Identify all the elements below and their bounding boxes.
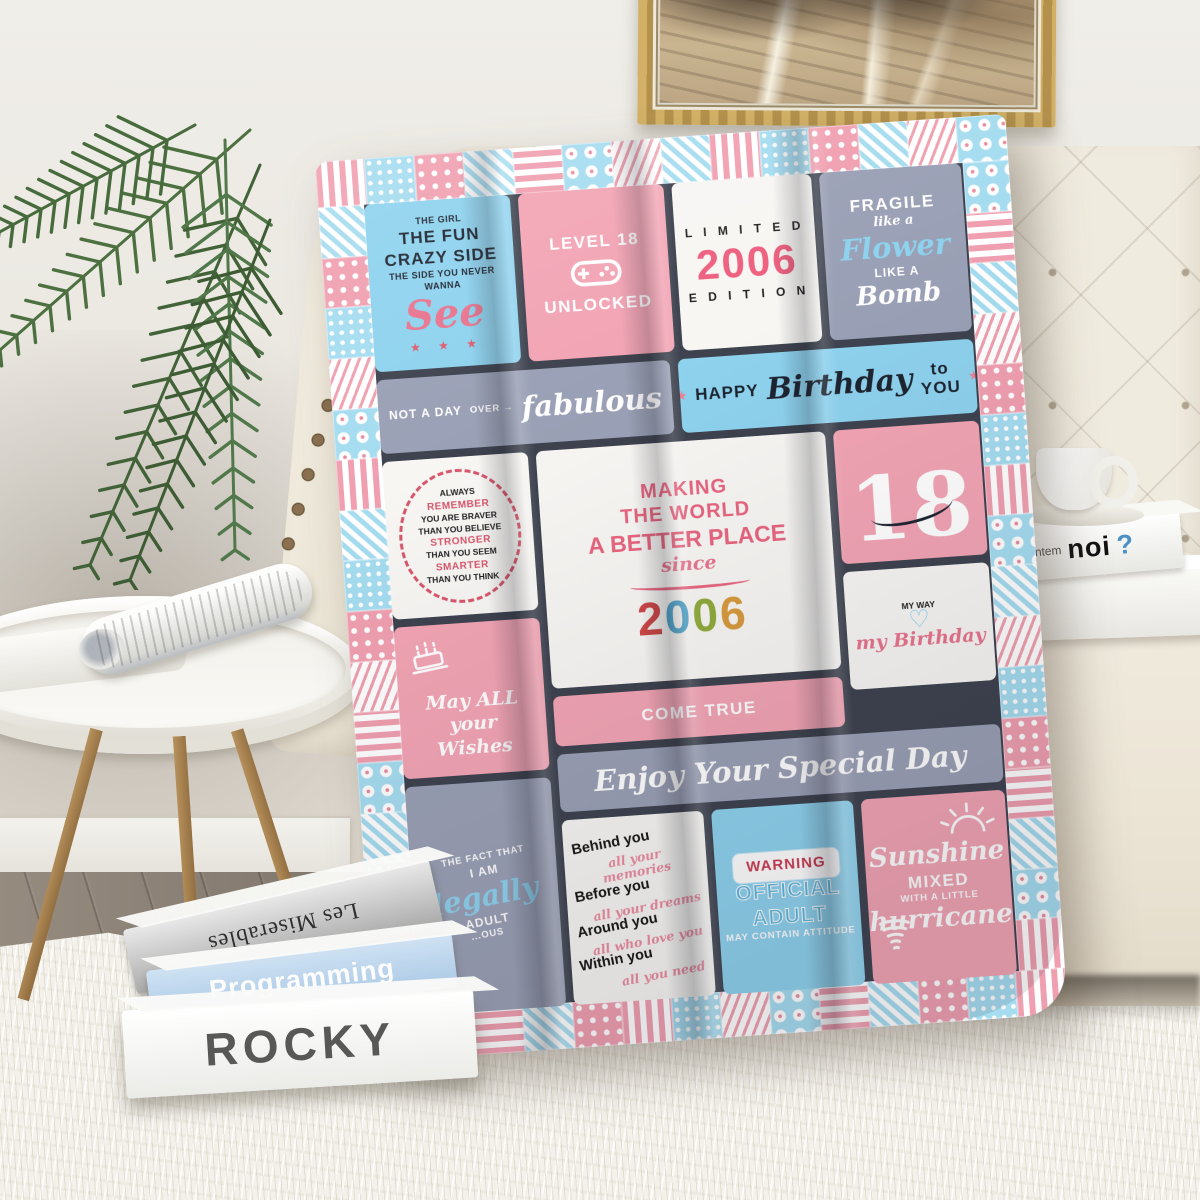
border-patch-flower-blue bbox=[956, 114, 1009, 163]
border-patch-wave-pink bbox=[994, 614, 1043, 668]
panel-text: 2006 bbox=[636, 587, 750, 646]
panel-text: Sunshine bbox=[868, 835, 1005, 873]
panel-text: HAPPY bbox=[695, 381, 760, 404]
border-patch-heart-pink bbox=[917, 975, 970, 1024]
tornado-icon bbox=[877, 917, 913, 953]
room-scene: ntem noi ? THE GIRLTHE FUNCRAZY SIDETHE … bbox=[0, 0, 1200, 1200]
panel-text: UNLOCKED bbox=[544, 291, 653, 318]
panel-text: Enjoy Your Special Day bbox=[593, 739, 967, 797]
border-patch-stripe-pink-h bbox=[473, 1006, 526, 1055]
border-patch-dot-blue bbox=[980, 412, 1029, 466]
blanket-panel-wishes: May ALLyourWishes bbox=[394, 618, 550, 780]
panel-text: MIXED bbox=[907, 869, 970, 892]
panel-text: since bbox=[660, 552, 717, 577]
border-patch-dot-blue bbox=[670, 992, 723, 1041]
book-spine-question-mark: ? bbox=[1115, 528, 1134, 560]
border-patch-wave-pink bbox=[329, 356, 378, 410]
border-patch-heart-pink bbox=[413, 152, 466, 201]
panel-text: Birthday bbox=[766, 363, 914, 407]
border-patch-stripe-pink-h bbox=[512, 145, 565, 194]
blanket-panel-eighteen: 18 bbox=[833, 420, 988, 564]
blanket-panel-always-remember: ALWAYSREMEMBERYOU ARE BRAVERTHAN YOU BEL… bbox=[382, 452, 539, 620]
border-patch-stripe-blue-d bbox=[857, 121, 910, 170]
blanket-panel-level-unlocked: LEVEL 18UNLOCKED bbox=[518, 184, 675, 362]
coffee-cup bbox=[1036, 448, 1112, 510]
panel-text: COME TRUE bbox=[641, 698, 758, 725]
border-patch-stripe-blue-d bbox=[522, 1002, 575, 1051]
panel-text: OVER → bbox=[470, 403, 515, 417]
panel-text: ALWAYS bbox=[439, 487, 475, 499]
border-patch-dot-blue bbox=[759, 128, 812, 177]
border-patch-flower-blue bbox=[357, 760, 406, 814]
border-patch-heart-pink bbox=[346, 609, 395, 663]
border-patch-stripe-pink-v bbox=[621, 995, 674, 1044]
cake-icon bbox=[402, 633, 453, 679]
border-patch-stripe-blue-d bbox=[463, 148, 516, 197]
blanket-panel-crazy-side: THE GIRLTHE FUNCRAZY SIDETHE SIDE YOU NE… bbox=[364, 195, 521, 373]
border-patch-flower-blue bbox=[987, 513, 1036, 567]
border-patch-flower-blue bbox=[561, 141, 614, 190]
border-patch-stripe-blue-d bbox=[1008, 816, 1057, 870]
panel-text: NOT A DAY bbox=[389, 405, 463, 423]
book-spine-small-text: ntem bbox=[1034, 543, 1062, 559]
game-controller-icon bbox=[566, 251, 627, 295]
border-patch-stripe-pink-h bbox=[1005, 766, 1054, 820]
border-patch-stripe-blue-d bbox=[970, 261, 1019, 315]
border-patch-dot-blue bbox=[966, 971, 1019, 1020]
framed-painting bbox=[637, 0, 1056, 127]
border-patch-stripe-pink-v bbox=[984, 463, 1033, 517]
border-patch-stripe-blue-d bbox=[339, 508, 388, 562]
border-patch-stripe-pink-v bbox=[709, 131, 762, 180]
panel-text: your bbox=[449, 712, 498, 737]
blanket-panel-behind-you: Behind youall your memoriesBefore youall… bbox=[561, 811, 716, 1005]
book-spine-title: noi bbox=[1066, 530, 1112, 565]
border-patch-dot-blue bbox=[343, 558, 392, 612]
blanket-panel-sunshine-hurricane: SunshineMIXEDWITH A LITTLEhurricane bbox=[861, 790, 1018, 985]
panel-text: LEVEL 18 bbox=[548, 229, 639, 254]
blanket-panel-not-a-day-over: NOT A DAYOVER →fabulous bbox=[376, 360, 674, 454]
border-patch-stripe-blue-d bbox=[991, 564, 1040, 618]
border-patch-wave-pink bbox=[720, 988, 773, 1037]
book-title: ROCKY bbox=[203, 1011, 397, 1077]
panel-text: See bbox=[403, 290, 486, 340]
border-patch-stripe-pink-h bbox=[966, 210, 1015, 264]
border-patch-flower-blue bbox=[962, 160, 1011, 214]
border-patch-wave-pink bbox=[350, 659, 399, 713]
border-patch-heart-pink bbox=[1001, 715, 1050, 769]
border-patch-stripe-pink-v bbox=[336, 457, 385, 511]
panel-text: like a bbox=[873, 213, 914, 230]
blanket-panel-happy-birthday: ★HAPPYBirthdayto YOU★ bbox=[677, 339, 977, 433]
blanket-panel-come-true: COME TRUE bbox=[553, 677, 846, 747]
border-patch-stripe-pink-h bbox=[353, 710, 402, 764]
border-patch-stripe-blue-d bbox=[660, 135, 713, 184]
border-patch-stripe-pink-v bbox=[315, 159, 368, 208]
panel-text: to YOU bbox=[919, 358, 961, 399]
border-patch-flower-blue bbox=[769, 985, 822, 1034]
panel-text: FRAGILE bbox=[849, 191, 935, 216]
border-patch-stripe-blue-d bbox=[868, 978, 921, 1027]
blanket-panel-warning-adult: WARNINGOFFICIALADULTMAY CONTAIN ATTITUDE bbox=[711, 800, 866, 994]
blanket-panel-fragile-bomb: FRAGILElike aFlowerLIKE ABomb bbox=[819, 163, 972, 340]
border-patch-wave-pink bbox=[611, 138, 664, 187]
palm-plant bbox=[0, 110, 290, 590]
panel-text: my Birthday bbox=[855, 625, 986, 655]
border-patch-wave-pink bbox=[973, 311, 1022, 365]
panel-text: fabulous bbox=[521, 381, 663, 423]
panel-text: Flower bbox=[839, 227, 951, 267]
panel-text: ★ bbox=[677, 388, 687, 403]
panel-text: May ALL bbox=[425, 688, 519, 716]
sun-icon bbox=[937, 798, 997, 836]
panel-text: THE GIRL bbox=[415, 213, 462, 226]
border-patch-flower-blue bbox=[1012, 867, 1061, 921]
blanket-panel-limited-edition: L I M I T E D2006E D I T I O N bbox=[671, 174, 822, 351]
blanket-panel-my-way-birthday: MY WAY♡my Birthday bbox=[843, 562, 997, 690]
panel-text: Bomb bbox=[855, 278, 942, 313]
border-patch-stripe-pink-h bbox=[818, 982, 871, 1031]
border-patch-stripe-blue-d bbox=[318, 205, 367, 259]
border-patch-stripe-pink-v bbox=[1015, 917, 1064, 971]
panel-text: 2006 bbox=[695, 235, 799, 289]
border-patch-heart-pink bbox=[572, 999, 625, 1048]
border-patch-wave-pink bbox=[906, 117, 959, 166]
panel-text: ★ bbox=[968, 368, 978, 383]
border-patch-heart-pink bbox=[322, 255, 371, 309]
panel-text: MAKING bbox=[639, 475, 727, 503]
border-patch-flower-blue bbox=[332, 407, 381, 461]
blanket-panel-grid: THE GIRLTHE FUNCRAZY SIDETHE SIDE YOU NE… bbox=[364, 163, 1019, 1013]
blanket-panel-making-world: MAKINGTHE WORLDA BETTER PLACEsince2006 bbox=[536, 431, 842, 689]
panel-text: MAY CONTAIN ATTITUDE bbox=[726, 925, 856, 945]
panel-text: ♡ bbox=[908, 612, 930, 628]
border-patch-dot-blue bbox=[325, 306, 374, 360]
border-patch-heart-pink bbox=[977, 362, 1026, 416]
panel-text: Wishes bbox=[437, 735, 514, 761]
painting-canvas-abstract bbox=[660, 0, 1035, 105]
border-patch-dot-blue bbox=[364, 155, 417, 204]
border-patch-dot-blue bbox=[998, 665, 1047, 719]
border-patch-heart-pink bbox=[808, 124, 861, 173]
panel-text: ★ ★ ★ bbox=[410, 337, 485, 356]
